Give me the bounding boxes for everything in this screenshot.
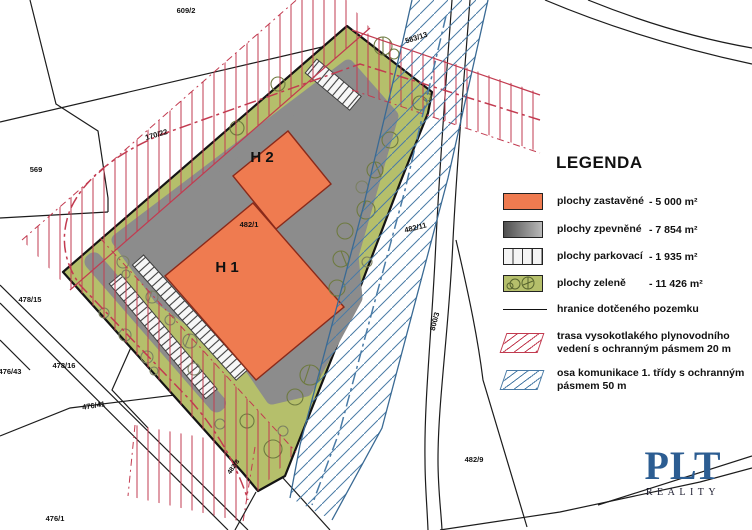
parcel-label: 476/1 <box>46 514 65 523</box>
legend-label: plochy zastavěné <box>557 195 649 208</box>
parcel-label: 482/9 <box>465 455 484 464</box>
legend-swatch-parking <box>503 248 543 265</box>
legend-item-greenery: plochy zeleně - 11 426 m² <box>503 275 703 292</box>
tree-icon <box>504 276 542 291</box>
legend-swatch-built <box>503 193 543 210</box>
logo-name: PLT <box>628 446 738 486</box>
parcel-label: 482/1 <box>240 220 259 229</box>
parcel-label: 609/2 <box>177 6 196 15</box>
site-plan-page: H 2 H 1 <box>0 0 752 530</box>
legend-swatch-gas-hatch <box>500 333 545 353</box>
legend-item-built: plochy zastavěné - 5 000 m² <box>503 193 697 210</box>
legend-item-gas-pipeline: trasa vysokotlakého plynovodního vedení … <box>503 330 752 356</box>
legend-item-parking: plochy parkovací - 1 935 m² <box>503 248 697 265</box>
parcel-label: 800/3 <box>428 311 442 331</box>
legend-value: - 11 426 m² <box>649 278 703 290</box>
legend-swatch-road-hatch <box>500 370 545 390</box>
legend-label: plochy zeleně <box>557 277 649 290</box>
legend-value: - 1 935 m² <box>649 251 697 263</box>
legend-swatch-paved <box>503 221 543 238</box>
legend-item-boundary: hranice dotčeného pozemku <box>503 303 752 316</box>
parcel-label: 478/16 <box>53 361 76 370</box>
legend-label: plochy parkovací <box>557 250 649 263</box>
legend-line2: vedení s ochranným pásmem 20 m <box>557 343 731 355</box>
building-label-h2: H 2 <box>250 149 273 166</box>
legend-label: trasa vysokotlakého plynovodního vedení … <box>557 330 752 356</box>
legend-item-paved: plochy zpevněné - 7 854 m² <box>503 221 697 238</box>
legend-swatch-greenery <box>503 275 543 292</box>
legend-value: - 7 854 m² <box>649 224 697 236</box>
legend-label: osa komunikace 1. třídy s ochranným pásm… <box>557 367 752 393</box>
plt-realty-logo: PLT REALITY <box>628 446 738 498</box>
legend-swatch-boundary-line <box>503 309 547 310</box>
legend-title: LEGENDA <box>556 153 643 173</box>
logo-subtitle: REALITY <box>628 487 738 498</box>
legend-label: plochy zpevněné <box>557 223 649 236</box>
legend-line1: trasa vysokotlakého plynovodního <box>557 330 730 342</box>
building-label-h1: H 1 <box>215 259 238 276</box>
parcel-label: 476/41 <box>82 399 106 411</box>
parcel-label: 478/15 <box>19 295 42 304</box>
legend-line2: pásmem 50 m <box>557 380 626 392</box>
parcel-label: 569 <box>30 165 43 174</box>
legend-item-road-axis: osa komunikace 1. třídy s ochranným pásm… <box>503 367 752 393</box>
legend-line1: osa komunikace 1. třídy s ochranným <box>557 367 744 379</box>
legend-label: hranice dotčeného pozemku <box>557 303 752 316</box>
parcel-label: 476/43 <box>0 367 21 376</box>
legend-value: - 5 000 m² <box>649 196 697 208</box>
